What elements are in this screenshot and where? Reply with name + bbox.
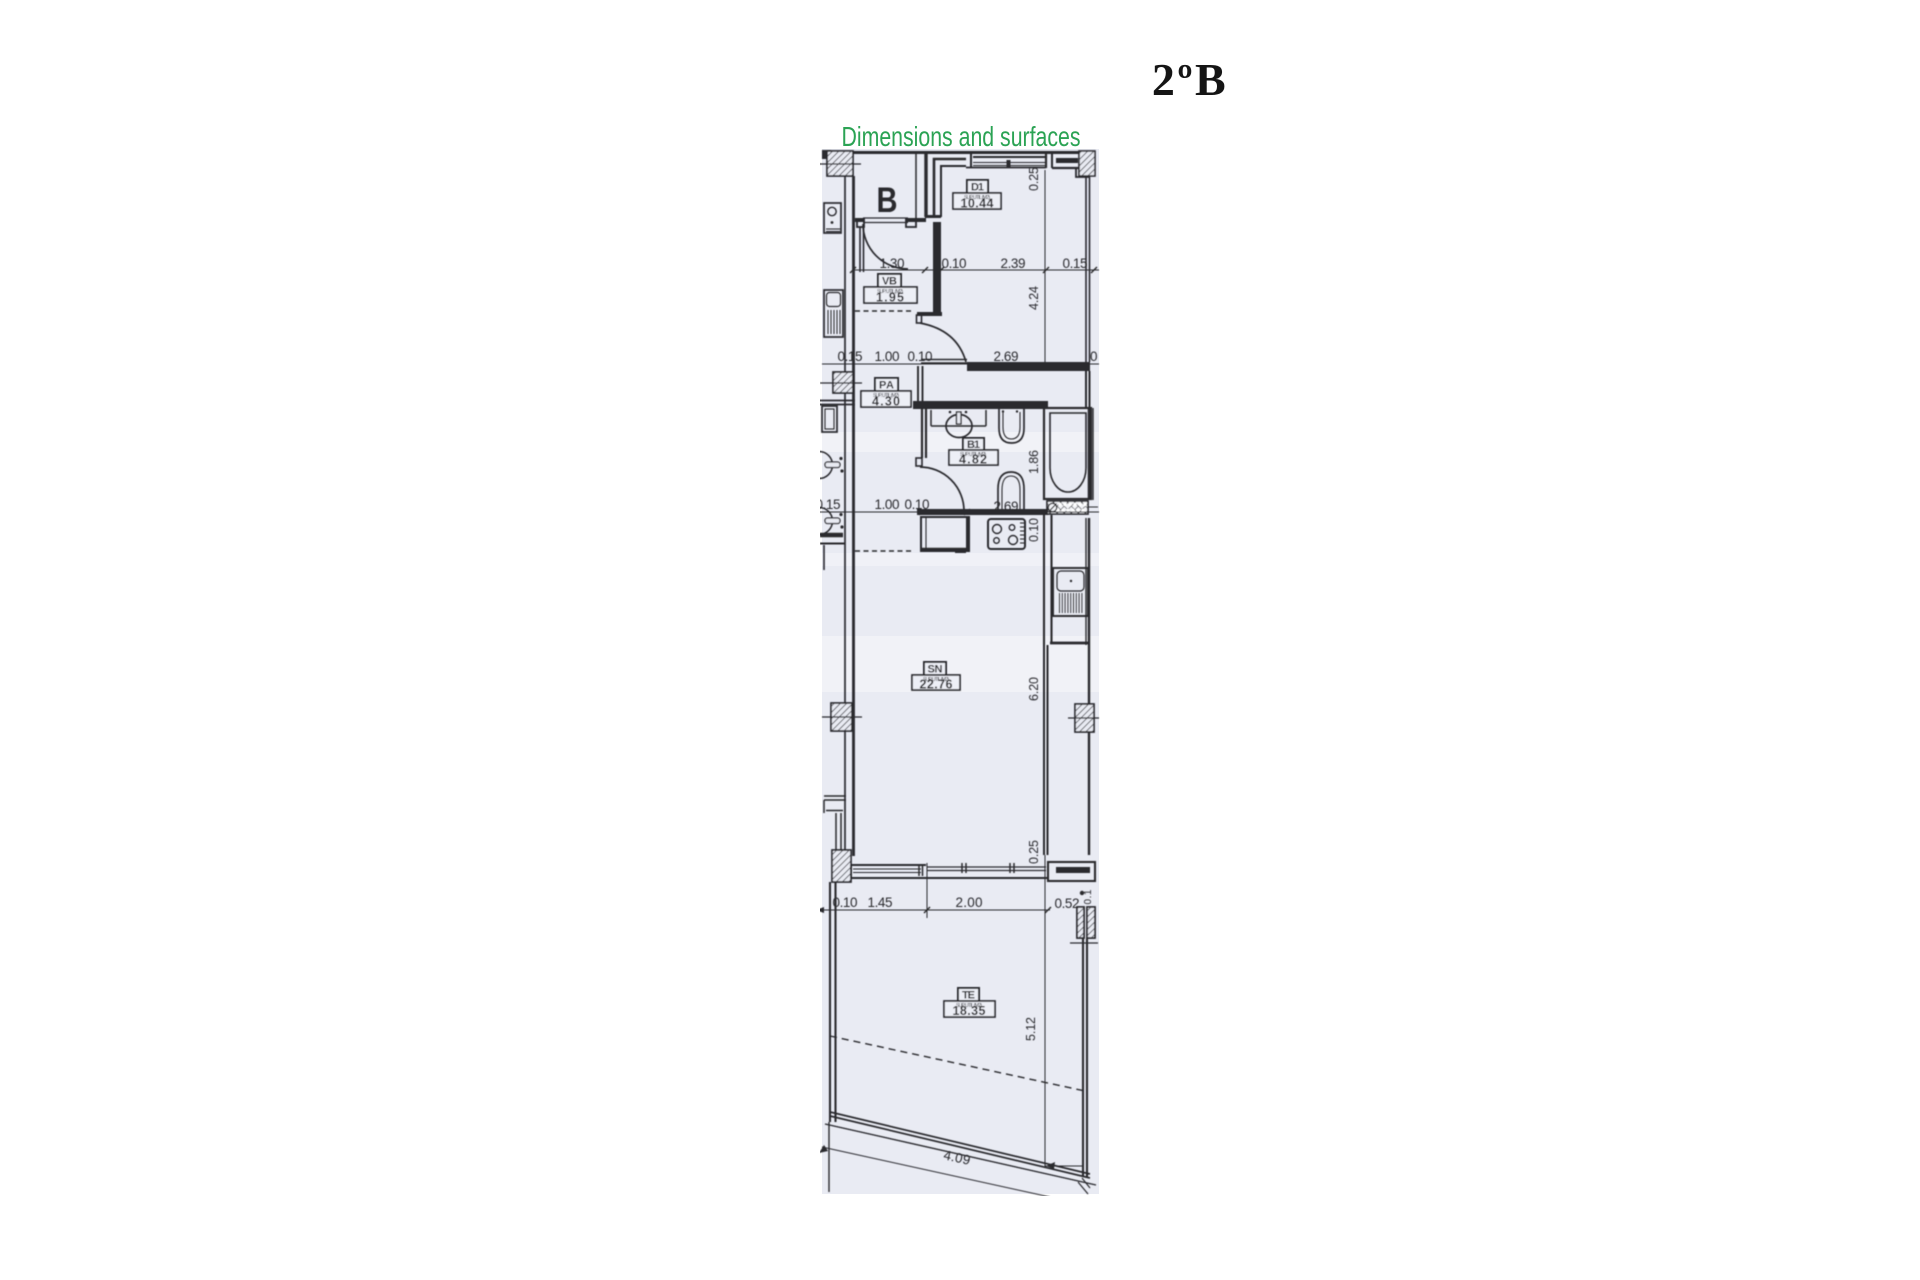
svg-text:1.30: 1.30 [880,256,905,271]
svg-text:1.45: 1.45 [868,895,893,910]
svg-text:0.10: 0.10 [905,497,930,512]
svg-text:1.00: 1.00 [875,349,900,364]
svg-text:4.30: 4.30 [872,395,900,409]
svg-text:0.52: 0.52 [1055,896,1080,911]
svg-text:2ºB: 2ºB [1152,54,1228,105]
svg-text:0.10: 0.10 [1027,518,1041,542]
svg-text:1.95: 1.95 [876,291,904,305]
svg-text:6.20: 6.20 [1027,677,1041,701]
svg-text:VB: VB [882,276,897,288]
svg-text:4.24: 4.24 [1027,286,1041,310]
svg-text:0.15: 0.15 [1063,256,1088,271]
svg-text:TE: TE [962,990,975,1002]
svg-text:0.10: 0.10 [942,256,967,271]
svg-text:0.10: 0.10 [908,349,933,364]
svg-text:SN: SN [928,664,943,676]
svg-text:10.44: 10.44 [961,197,994,211]
svg-text:D1: D1 [971,182,984,194]
svg-text:PA: PA [879,380,894,392]
svg-text:2.39: 2.39 [1001,256,1026,271]
svg-text:22.76: 22.76 [920,678,953,692]
svg-text:1.00: 1.00 [875,497,900,512]
svg-text:0.25: 0.25 [1027,840,1041,864]
svg-text:18.35: 18.35 [953,1004,986,1018]
svg-text:1.86: 1.86 [1027,450,1041,474]
svg-text:0.1: 0.1 [1083,889,1094,904]
svg-text:2.00: 2.00 [956,895,983,910]
svg-text:2.69: 2.69 [994,499,1019,514]
svg-text:B: B [877,181,898,220]
svg-text:4.82: 4.82 [959,453,987,467]
svg-text:0.15: 0.15 [838,349,863,364]
svg-text:Dimensions and surfaces: Dimensions and surfaces [842,121,1081,152]
svg-text:0.25: 0.25 [1027,167,1041,191]
svg-text:2.69: 2.69 [994,349,1019,364]
svg-text:5.12: 5.12 [1024,1017,1038,1041]
